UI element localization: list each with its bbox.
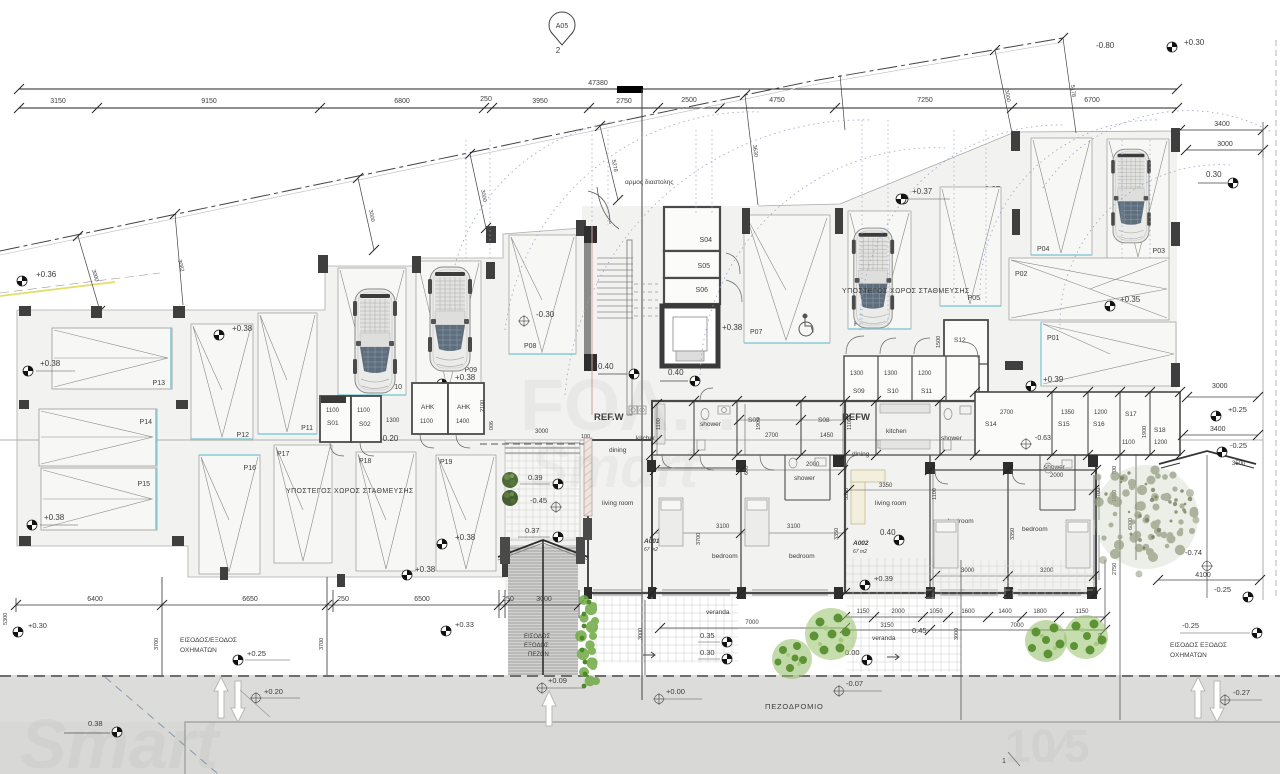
svg-text:S12: S12 [954,337,966,344]
svg-text:-0.20: -0.20 [380,434,399,443]
svg-text:bedroom: bedroom [789,553,815,560]
svg-text:900: 900 [487,421,493,430]
svg-text:1900: 1900 [756,418,762,430]
svg-text:bedroom: bedroom [1022,526,1048,533]
svg-text:1900: 1900 [1142,426,1148,438]
svg-text:ΟΧΗΜΑΤΩΝ: ΟΧΗΜΑΤΩΝ [180,647,217,654]
svg-text:1300: 1300 [386,418,400,424]
svg-text:2700: 2700 [765,433,779,439]
svg-text:6500: 6500 [414,596,430,603]
svg-text:1100: 1100 [847,418,853,430]
svg-text:P01: P01 [1047,335,1060,342]
svg-text:0.45: 0.45 [912,626,927,635]
svg-text:ΠΕΖΩΝ: ΠΕΖΩΝ [528,652,549,658]
svg-text:P15: P15 [138,481,151,488]
svg-text:1450: 1450 [820,433,834,439]
svg-text:250: 250 [502,596,514,603]
svg-text:+0.39: +0.39 [1043,375,1064,384]
svg-text:10⁄5: 10⁄5 [1005,720,1089,772]
svg-text:3100: 3100 [787,524,801,530]
svg-text:-0.63: -0.63 [1035,435,1051,442]
svg-text:S18: S18 [1154,427,1166,434]
svg-text:ΕΙΣΟΔΟΣ ΕΞΟΔΟΣ: ΕΙΣΟΔΟΣ ΕΞΟΔΟΣ [1170,642,1227,649]
svg-text:0.35: 0.35 [700,631,715,640]
svg-text:S09: S09 [853,388,865,395]
svg-text:S10: S10 [887,388,899,395]
svg-text:3350: 3350 [834,528,840,540]
svg-text:5278: 5278 [610,159,618,172]
svg-text:shower: shower [941,435,963,442]
svg-text:3000: 3000 [1003,89,1011,102]
svg-text:1100: 1100 [357,408,371,414]
svg-text:+0.38: +0.38 [415,565,436,574]
svg-text:3000: 3000 [367,209,375,222]
svg-text:+0.38: +0.38 [40,359,61,368]
svg-text:3000: 3000 [536,596,552,603]
svg-text:6800: 6800 [394,98,410,105]
svg-text:-0.74: -0.74 [1185,548,1202,557]
svg-text:1200: 1200 [1154,440,1168,446]
svg-text:+0.37: +0.37 [912,187,933,196]
svg-text:ΥΠΟΣΤΕΓΟΣ ΧΩΡΟΣ ΣΤΑΘΜΕΥΣΗΣ: ΥΠΟΣΤΕΓΟΣ ΧΩΡΟΣ ΣΤΑΘΜΕΥΣΗΣ [842,288,970,295]
svg-text:250: 250 [337,596,349,603]
svg-text:0.40: 0.40 [880,528,896,537]
svg-text:+0.30: +0.30 [28,621,47,630]
svg-text:AHK: AHK [421,404,435,411]
svg-text:7000: 7000 [1010,623,1024,629]
svg-text:S05: S05 [698,263,711,270]
svg-text:veranda: veranda [872,635,896,642]
svg-text:+0.09: +0.09 [548,676,567,685]
svg-text:+0.38: +0.38 [44,513,65,522]
svg-text:shower: shower [794,475,816,482]
svg-text:6400: 6400 [87,596,103,603]
svg-text:P07: P07 [750,329,763,336]
svg-text:P19: P19 [440,459,453,466]
svg-text:AHK: AHK [457,404,471,411]
svg-text:9150: 9150 [201,98,217,105]
svg-text:P18: P18 [359,458,372,465]
svg-text:P13: P13 [153,380,166,387]
svg-text:67 m2: 67 m2 [644,547,658,553]
svg-text:S16: S16 [1093,421,1105,428]
svg-text:-0.27: -0.27 [1233,688,1250,697]
svg-text:3150: 3150 [880,623,894,629]
svg-text:1350: 1350 [1061,410,1075,416]
svg-text:kitchen: kitchen [886,428,907,435]
svg-text:2700: 2700 [1000,410,1014,416]
svg-text:0.30: 0.30 [700,648,715,657]
svg-text:0.37: 0.37 [525,526,540,535]
svg-text:250: 250 [480,96,492,103]
svg-text:3700: 3700 [154,638,160,650]
svg-text:P11: P11 [301,425,313,432]
svg-text:+0.38: +0.38 [722,323,743,332]
svg-text:+0.33: +0.33 [455,620,474,629]
svg-text:1800: 1800 [1033,609,1047,615]
svg-text:7250: 7250 [917,97,933,104]
svg-text:3200: 3200 [1040,568,1054,574]
svg-text:1150: 1150 [857,609,871,615]
svg-text:3400: 3400 [1214,121,1230,128]
svg-text:+0.36: +0.36 [36,270,57,279]
svg-text:+0.25: +0.25 [1228,405,1247,414]
svg-text:ΟΧΗΜΑΤΩΝ: ΟΧΗΜΑΤΩΝ [1170,652,1207,659]
svg-text:dining: dining [852,451,870,458]
svg-text:5178: 5178 [1069,85,1076,98]
svg-text:living room: living room [875,500,906,507]
svg-text:1400: 1400 [998,609,1012,615]
svg-text:3000: 3000 [1217,141,1233,148]
svg-text:1300: 1300 [884,371,898,377]
svg-text:6700: 6700 [1084,97,1100,104]
svg-text:+0.20: +0.20 [264,687,283,696]
svg-text:ΕΙΣΟΔΟΣ/ΕΞΟΔΟΣ: ΕΙΣΟΔΟΣ/ΕΞΟΔΟΣ [180,637,237,644]
svg-text:+0.25: +0.25 [247,649,266,658]
svg-text:S04: S04 [700,237,713,244]
svg-text:47380: 47380 [588,80,608,87]
svg-text:1100: 1100 [326,408,340,414]
svg-text:P03: P03 [1153,248,1166,255]
svg-text:αρμος διαστολης: αρμος διαστολης [625,179,674,186]
svg-text:3700: 3700 [696,533,702,545]
svg-text:3400: 3400 [1210,426,1226,433]
svg-text:P08: P08 [524,343,537,350]
svg-text:2500: 2500 [681,97,697,104]
svg-text:1500: 1500 [936,336,942,348]
svg-text:S06: S06 [696,287,709,294]
svg-text:2000: 2000 [1050,473,1064,479]
svg-text:3700: 3700 [319,638,325,650]
svg-text:67 m2: 67 m2 [853,549,867,555]
svg-text:2100: 2100 [480,400,486,412]
svg-text:1100: 1100 [1122,440,1136,446]
svg-text:3950: 3950 [532,98,548,105]
svg-text:2000: 2000 [891,609,905,615]
svg-text:-0.07: -0.07 [846,679,863,688]
svg-text:P14: P14 [140,419,153,426]
svg-text:2750: 2750 [1112,563,1118,575]
svg-text:+0.39: +0.39 [874,574,893,583]
svg-text:P17: P17 [277,451,290,458]
svg-text:3082: 3082 [176,259,185,272]
svg-text:S15: S15 [1058,421,1070,428]
svg-text:1400: 1400 [456,419,470,425]
svg-text:1600: 1600 [961,609,975,615]
svg-text:A002: A002 [852,540,869,547]
svg-text:+0.30: +0.30 [1184,38,1205,47]
svg-text:6650: 6650 [242,596,258,603]
svg-text:1200: 1200 [1094,410,1108,416]
svg-text:+0.35: +0.35 [1120,295,1141,304]
svg-text:shower: shower [1044,464,1066,471]
svg-text:S11: S11 [921,388,932,395]
svg-text:Smart: Smart [20,705,221,774]
svg-text:FOΛ…: FOΛ… [520,366,740,446]
svg-text:-0.25: -0.25 [1182,621,1199,630]
svg-text:+0.00: +0.00 [666,687,685,696]
svg-text:-0.80: -0.80 [1096,41,1115,50]
svg-text:1200: 1200 [918,371,932,377]
svg-text:2: 2 [556,46,561,55]
svg-text:3000: 3000 [90,269,99,282]
svg-text:S01: S01 [327,420,339,427]
svg-text:600: 600 [744,466,750,475]
svg-text:1150: 1150 [1076,609,1090,615]
svg-text:veranda: veranda [706,609,730,616]
svg-text:2750: 2750 [616,98,632,105]
svg-text:5300: 5300 [3,613,9,625]
svg-text:7000: 7000 [745,620,759,626]
svg-text:0.30: 0.30 [1206,170,1222,179]
svg-text:3350: 3350 [1010,528,1016,540]
svg-text:ΠΕΖΟΔΡΟΜΙΟ: ΠΕΖΟΔΡΟΜΙΟ [765,702,824,711]
svg-text:-0.25: -0.25 [1214,585,1231,594]
svg-text:3000: 3000 [638,628,644,640]
svg-text:P02: P02 [1015,271,1028,278]
svg-text:3500: 3500 [1232,461,1246,467]
svg-text:S14: S14 [985,421,997,428]
svg-text:+0.38: +0.38 [455,373,476,382]
svg-text:+0.38: +0.38 [455,533,476,542]
svg-text:ΕΞΟΔΟΣ: ΕΞΟΔΟΣ [524,643,549,649]
svg-text:ΥΠΟΣΤΕΓΟΣ ΧΩΡΟΣ ΣΤΑΘΜΕΥΣΗΣ: ΥΠΟΣΤΕΓΟΣ ΧΩΡΟΣ ΣΤΑΘΜΕΥΣΗΣ [286,488,414,495]
svg-text:bedroom: bedroom [712,553,738,560]
svg-text:1300: 1300 [850,371,864,377]
svg-text:3100: 3100 [716,524,730,530]
svg-text:1050: 1050 [929,609,943,615]
svg-text:A001: A001 [643,538,660,545]
svg-text:S02: S02 [359,421,371,428]
svg-text:3350: 3350 [879,483,893,489]
svg-text:S17: S17 [1125,411,1137,418]
svg-text:+0.38: +0.38 [232,324,253,333]
svg-text:A05: A05 [556,23,569,30]
svg-text:P12: P12 [237,432,250,439]
svg-text:4100: 4100 [1195,572,1211,579]
svg-text:2000: 2000 [806,462,820,468]
svg-text:P05: P05 [968,295,981,302]
svg-text:4750: 4750 [769,97,785,104]
svg-text:3000: 3000 [954,628,960,640]
svg-text:S08: S08 [818,417,830,424]
svg-text:ΕΙΣΟΔΟΣ: ΕΙΣΟΔΟΣ [524,634,550,640]
svg-text:-0.25: -0.25 [1230,441,1247,450]
svg-text:P04: P04 [1037,246,1050,253]
svg-text:P16: P16 [244,465,257,472]
svg-text:1100: 1100 [420,419,434,425]
svg-text:-0.30: -0.30 [536,310,555,319]
svg-text:3000: 3000 [1212,383,1228,390]
svg-text:living room: living room [602,500,633,507]
svg-text:Smαrt: Smαrt [530,435,701,500]
svg-text:3150: 3150 [50,98,66,105]
